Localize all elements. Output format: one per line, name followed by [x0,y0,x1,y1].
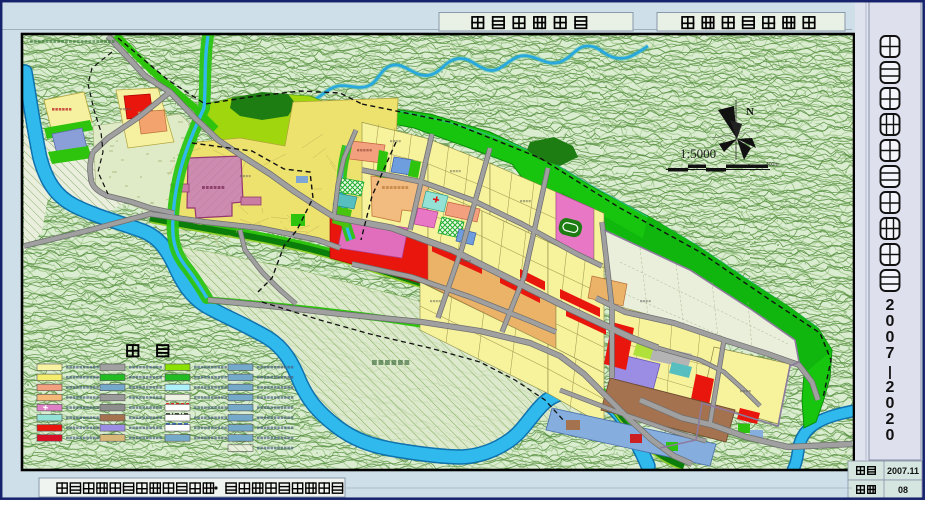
svg-text:2: 2 [886,297,895,314]
svg-text:2: 2 [886,411,895,428]
svg-text:N: N [746,106,754,118]
svg-text:1:5000: 1:5000 [680,146,716,161]
svg-text:08: 08 [898,485,908,495]
svg-text:0: 0 [886,329,895,346]
svg-text:2: 2 [886,379,895,396]
svg-text:0: 0 [886,313,895,330]
svg-text:7: 7 [886,345,895,362]
svg-text:2007.11: 2007.11 [887,466,919,476]
svg-text:400m: 400m [766,162,779,168]
svg-text:0: 0 [886,395,895,412]
svg-text:|: | [888,363,892,379]
svg-text:0: 0 [886,427,895,444]
